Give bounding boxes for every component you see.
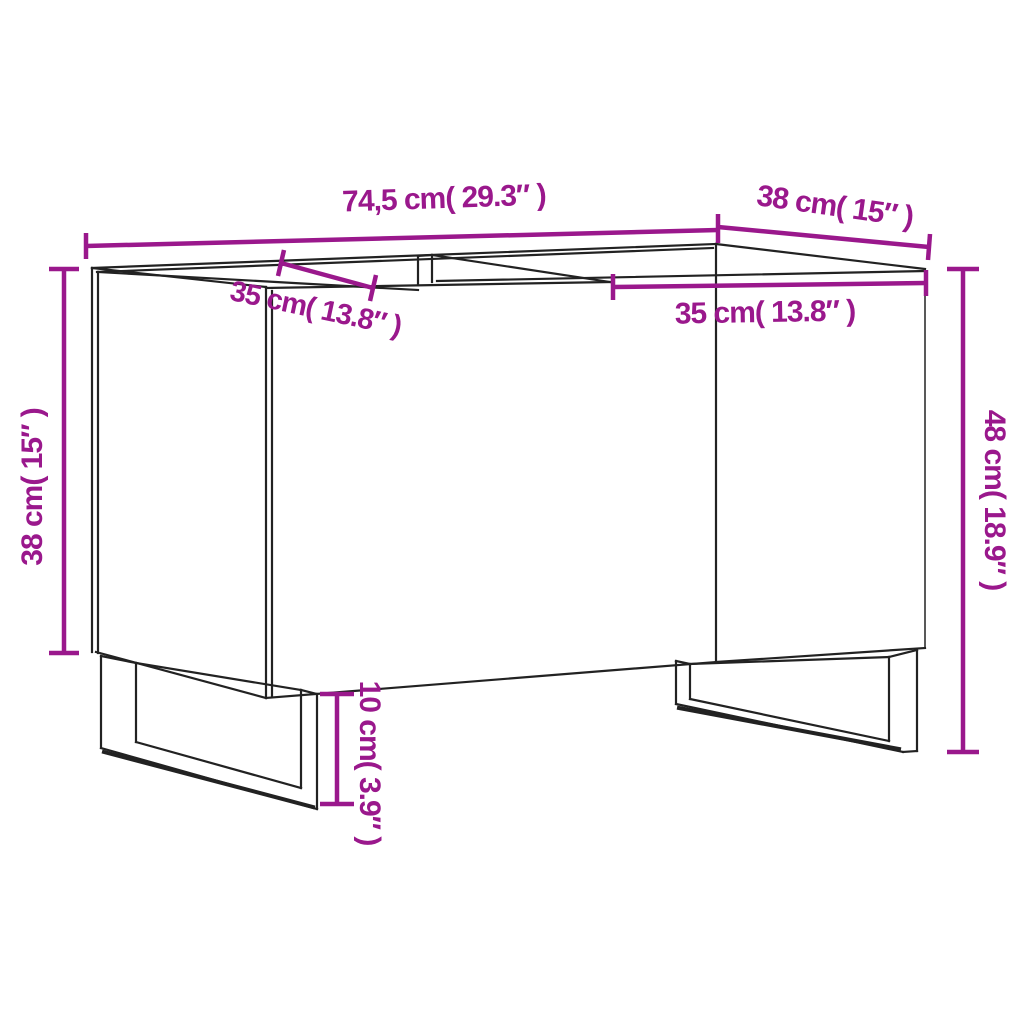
dim-right-opening-label: 35 cm( 13.8″ ) xyxy=(674,294,855,330)
right-leg-rail-accent xyxy=(679,708,899,749)
left-leg xyxy=(101,656,317,809)
dim-total-height-label: 48 cm( 18.9″ ) xyxy=(978,410,1011,590)
dimension-tick xyxy=(370,275,376,301)
furniture-dimension-diagram: 74,5 cm( 29.3″ ) 38 cm( 15″ ) 35 cm( 13.… xyxy=(0,0,1024,1024)
dim-total-height xyxy=(947,269,979,752)
right-leg xyxy=(676,650,917,752)
dim-top-width-label: 74,5 cm( 29.3″ ) xyxy=(342,178,547,218)
dim-body-height xyxy=(49,269,79,653)
dimension-tick xyxy=(928,234,930,260)
dimension-line xyxy=(86,230,718,246)
dim-leg-height xyxy=(320,694,354,804)
left-leg-rail-accent xyxy=(104,752,313,807)
dim-body-height-label: 38 cm( 15″ ) xyxy=(16,408,49,565)
dimension-tick xyxy=(278,250,284,276)
dim-top-depth-label: 38 cm( 15″ ) xyxy=(755,179,916,234)
cabinet-line-drawing xyxy=(92,244,925,809)
dimension-line xyxy=(613,283,926,287)
dim-leg-height-label: 10 cm( 3.9″ ) xyxy=(353,681,386,846)
cabinet-diagram-canvas: 74,5 cm( 29.3″ ) 38 cm( 15″ ) 35 cm( 13.… xyxy=(0,0,1024,1024)
